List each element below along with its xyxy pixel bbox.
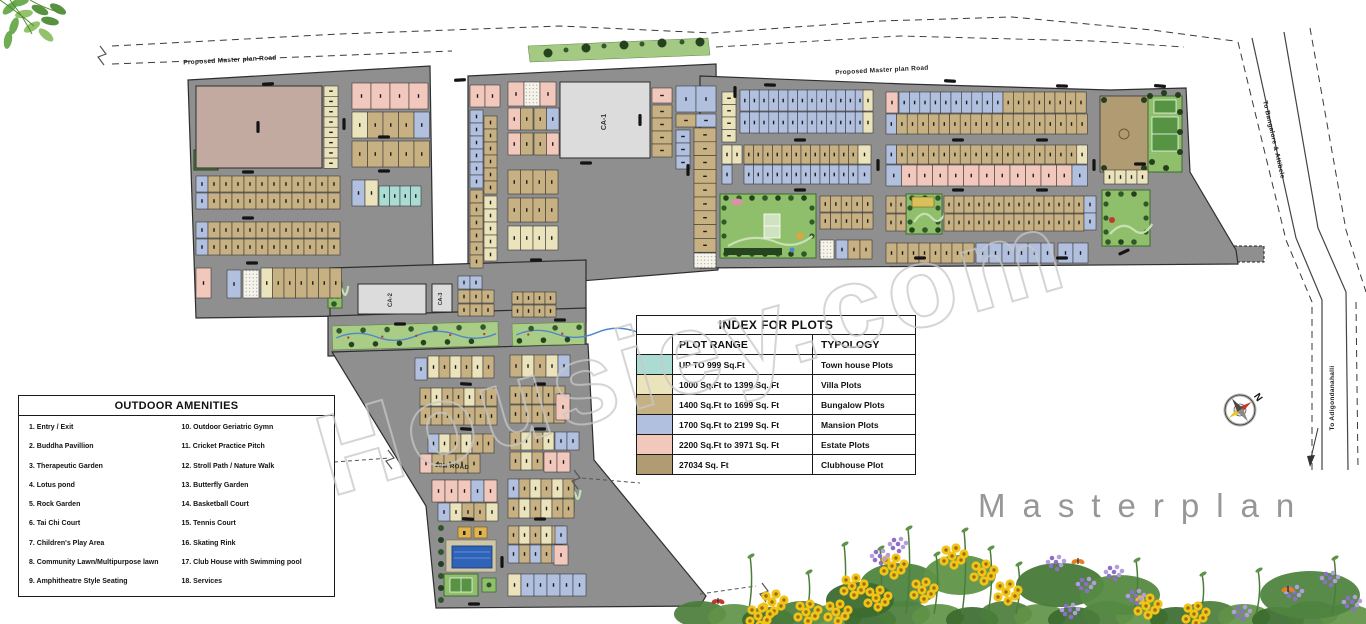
typology-color-swatch <box>637 435 673 454</box>
typology-color-swatch <box>637 415 673 434</box>
plot-range-cell: 1400 Sq.Ft to 1699 Sq. Ft <box>673 395 813 414</box>
amenity-item: 1. Entry / Exit <box>29 423 182 442</box>
plot-range-cell: 2200 Sq.Ft to 3971 Sq. Ft <box>673 435 813 454</box>
proposed-road-label-left: Proposed Master plan Road <box>183 55 277 67</box>
amenities-column-2: 10. Outdoor Geriatric Gymn11. Cricket Pr… <box>182 423 335 597</box>
plot-range-cell: UP TO 999 Sq.Ft <box>673 355 813 374</box>
ca2-label: CA-2 <box>388 292 394 307</box>
plot-range-cell: 1000 Sq.Ft to 1399 Sq. Ft <box>673 375 813 394</box>
typology-color-swatch <box>637 455 673 474</box>
table-row: UP TO 999 Sq.FtTown house Plots <box>637 355 915 375</box>
amenity-item: 13. Butterfly Garden <box>182 481 335 500</box>
amenity-item: 8. Community Lawn/Multipurpose lawn <box>29 558 182 577</box>
masterplan-page: Proposed Master plan Road Proposed Maste… <box>0 0 1366 624</box>
amenity-item: 18. Services <box>182 577 335 596</box>
amenity-item: 16. Skating Rink <box>182 539 335 558</box>
amenity-item: 17. Club House with Swimming pool <box>182 558 335 577</box>
amenity-item: 10. Outdoor Geriatric Gymn <box>182 423 335 442</box>
road-to-south-label: To Adigondanahalli <box>1329 366 1336 431</box>
table-row: 1400 Sq.Ft to 1699 Sq. FtBungalow Plots <box>637 395 915 415</box>
amenity-item: 9. Amphitheatre Style Seating <box>29 577 182 596</box>
proposed-road-label-right: Proposed Master plan Road <box>835 65 929 77</box>
header-swatch-cell <box>637 335 673 354</box>
amenity-item: 2. Buddha Pavillion <box>29 442 182 461</box>
amenity-item: 14. Basketball Court <box>182 500 335 519</box>
amenities-column-1: 1. Entry / Exit2. Buddha Pavillion3. The… <box>29 423 182 597</box>
outdoor-amenities-title: OUTDOOR AMENITIES <box>19 396 334 416</box>
table-row: 2200 Sq.Ft to 3971 Sq. FtEstate Plots <box>637 435 915 455</box>
typology-cell: Estate Plots <box>813 435 915 454</box>
amenity-item: 7. Children's Play Area <box>29 539 182 558</box>
road-to-northeast-label: To Bangalore & Attibele <box>1261 100 1286 179</box>
index-table-title: INDEX FOR PLOTS <box>637 316 915 335</box>
amenity-item: 4. Lotus pond <box>29 481 182 500</box>
table-row: 27034 Sq. FtClubhouse Plot <box>637 455 915 474</box>
amenity-item: 3. Therapeutic Garden <box>29 462 182 481</box>
amenity-item: 11. Cricket Practice Pitch <box>182 442 335 461</box>
typology-cell: Clubhouse Plot <box>813 455 915 474</box>
table-row: 1000 Sq.Ft to 1399 Sq. FtVilla Plots <box>637 375 915 395</box>
typology-color-swatch <box>637 355 673 374</box>
outdoor-amenities-box: OUTDOOR AMENITIES 1. Entry / Exit2. Budd… <box>18 395 335 597</box>
plot-range-cell: 27034 Sq. Ft <box>673 455 813 474</box>
page-title: Masterplan <box>978 487 1311 525</box>
ca1-label: CA-1 <box>601 114 608 130</box>
amenity-item: 5. Rock Garden <box>29 500 182 519</box>
amenity-item: 6. Tai Chi Court <box>29 519 182 538</box>
amenity-item: 12. Stroll Path / Nature Walk <box>182 462 335 481</box>
typology-cell: Bungalow Plots <box>813 395 915 414</box>
typology-cell: Town house Plots <box>813 355 915 374</box>
typology-color-swatch <box>637 375 673 394</box>
typology-cell: Mansion Plots <box>813 415 915 434</box>
compass-rose: N <box>1219 382 1271 431</box>
typology-cell: Villa Plots <box>813 375 915 394</box>
index-for-plots-table: INDEX FOR PLOTS PLOT RANGE TYPOLOGY UP T… <box>636 315 916 475</box>
ca3-label: CA-3 <box>438 293 444 306</box>
header-plot-range: PLOT RANGE <box>673 335 813 354</box>
index-table-header: PLOT RANGE TYPOLOGY <box>637 335 915 355</box>
plot-range-cell: 1700 Sq.Ft to 2199 Sq. Ft <box>673 415 813 434</box>
amenity-item: 15. Tennis Court <box>182 519 335 538</box>
table-row: 1700 Sq.Ft to 2199 Sq. FtMansion Plots <box>637 415 915 435</box>
typology-color-swatch <box>637 395 673 414</box>
header-typology: TYPOLOGY <box>813 335 915 354</box>
